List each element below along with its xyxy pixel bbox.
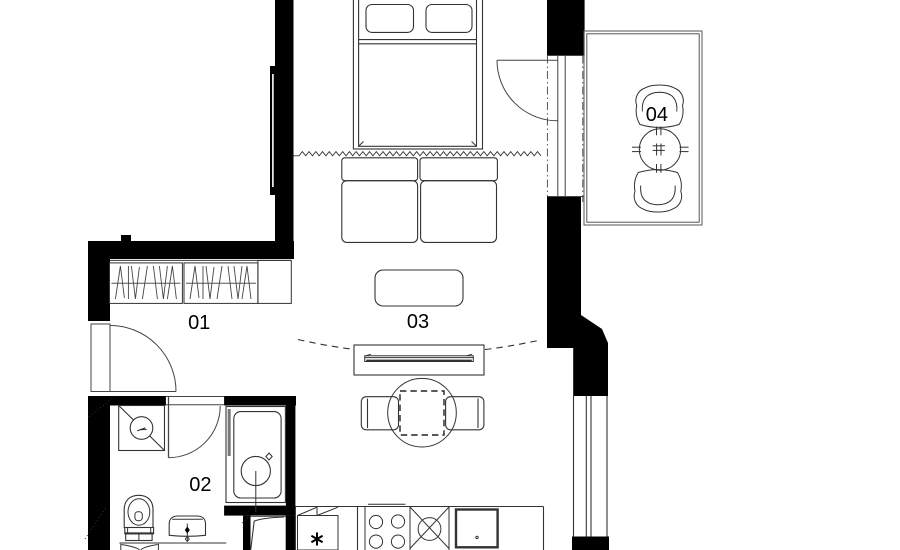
svg-text:03: 03 <box>407 311 429 333</box>
svg-text:04: 04 <box>646 104 668 126</box>
svg-text:01: 01 <box>188 312 210 334</box>
svg-text:02: 02 <box>189 474 211 496</box>
